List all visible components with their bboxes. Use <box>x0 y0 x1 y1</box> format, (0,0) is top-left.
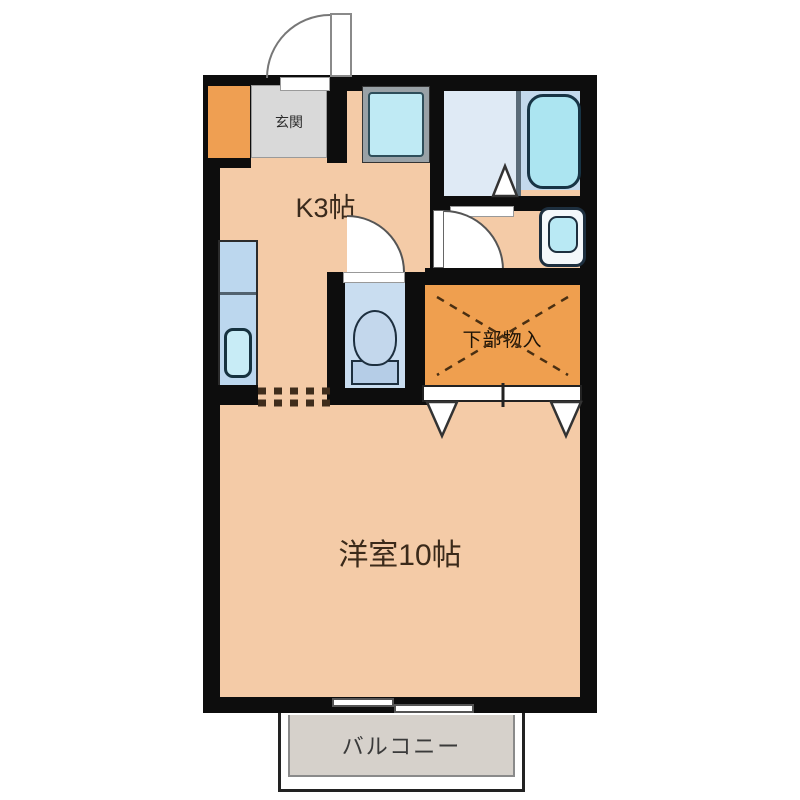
balcony-sliding-door-panel-2 <box>394 704 474 713</box>
toilet-bowl <box>353 310 397 366</box>
wall-washroom-bottom <box>425 268 597 285</box>
washing-machine-pan-basin <box>368 92 424 157</box>
balcony-floor: バルコニー <box>288 715 515 777</box>
washing-machine-pan <box>362 86 430 163</box>
wall-stub-counter <box>203 385 258 405</box>
balcony-sliding-door-panel-1 <box>332 698 394 707</box>
wash-basin <box>539 207 586 267</box>
entrance-floor: 玄関 <box>251 85 327 158</box>
toilet-door-sill <box>343 272 405 283</box>
closet-door-track <box>422 385 582 402</box>
storage-label: 下部物入 <box>425 325 580 352</box>
bathroom-floor <box>444 91 516 196</box>
kitchen-counter-divider <box>220 292 256 295</box>
entrance-door-swing-arc <box>266 14 330 78</box>
entrance-label: 玄関 <box>275 112 303 132</box>
entrance-door-sill <box>280 77 330 91</box>
wall-right <box>580 75 597 713</box>
wall-entrance-right <box>327 75 347 163</box>
bathtub <box>527 94 581 189</box>
washroom-door-leaf <box>433 210 444 268</box>
entrance-door-leaf <box>330 13 352 77</box>
wall-toilet-left <box>327 272 345 405</box>
living-label: 洋室10帖 <box>220 530 580 574</box>
kitchen-sink <box>224 328 252 378</box>
wall-toilet-bottom <box>327 388 427 405</box>
wash-basin-bowl <box>548 216 578 253</box>
floorplan-canvas: 玄関 K3帖 下部物入 洋室10帖 バルコニー <box>0 0 800 800</box>
shoe-cabinet <box>208 86 250 158</box>
kitchen-counter <box>218 240 258 390</box>
balcony-label: バルコニー <box>342 729 462 761</box>
